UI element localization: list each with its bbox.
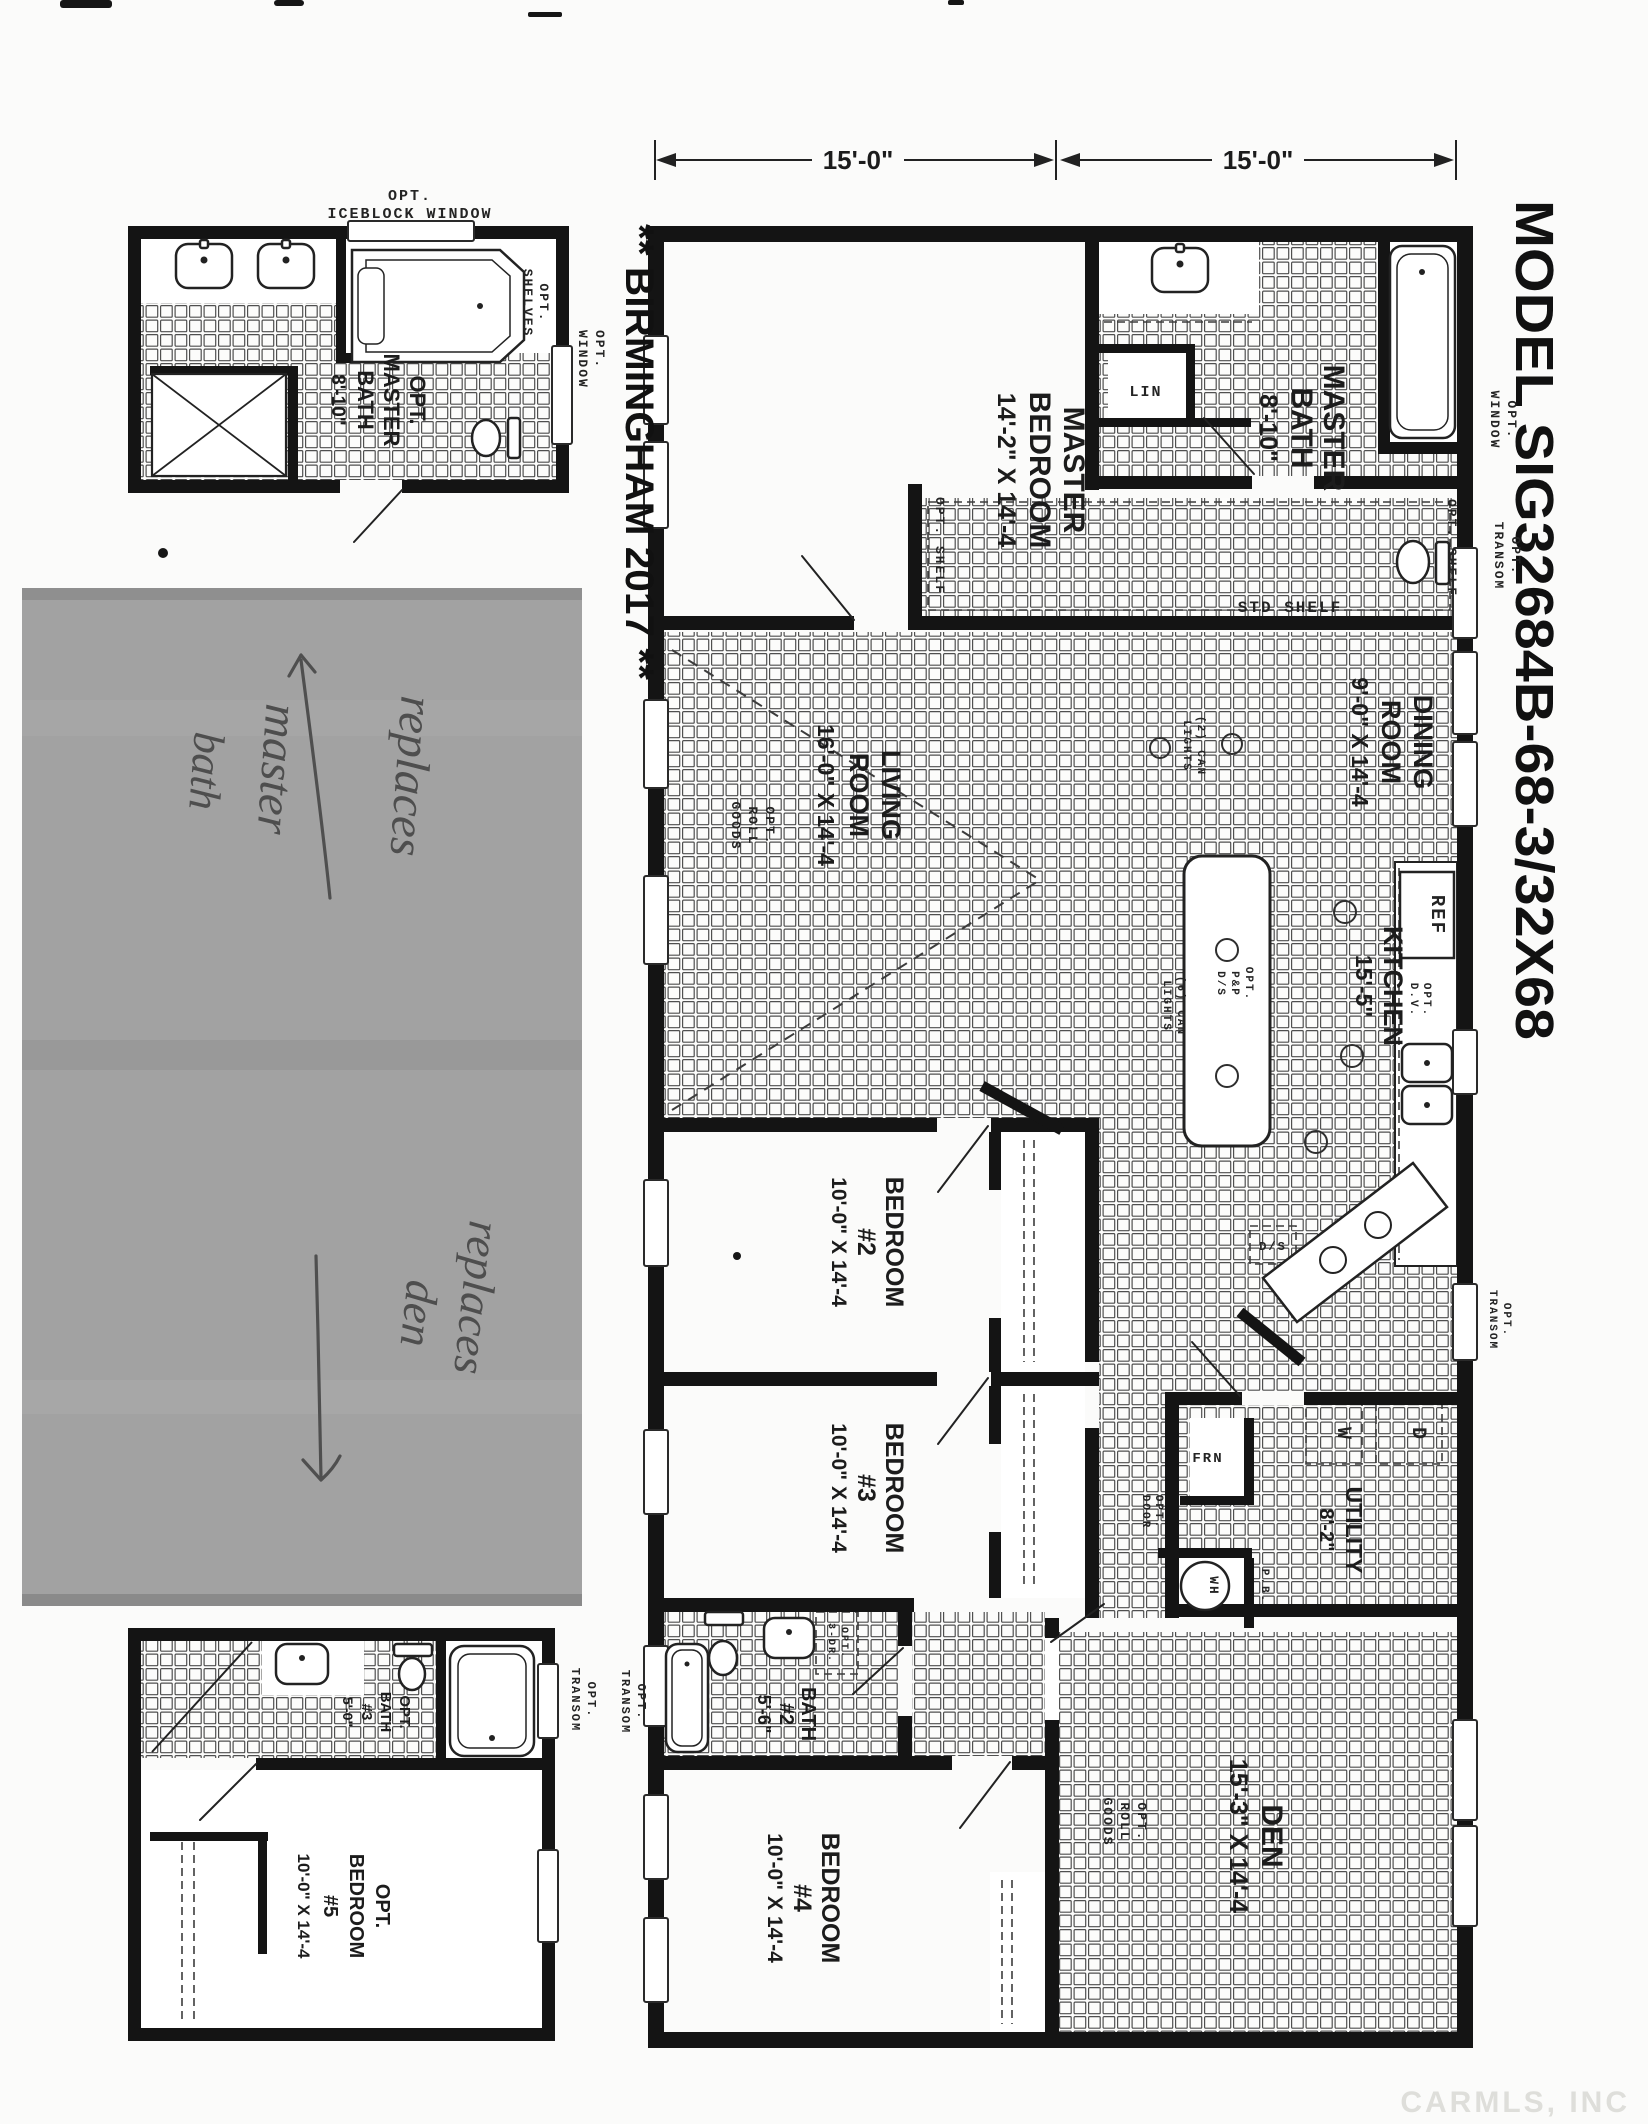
label-opt-shelves: OPT. <box>536 283 551 322</box>
label-bedroom2-size: 10'-0" X 14'-4 <box>827 1177 850 1307</box>
label-can-lights-2: LIGHTS <box>1180 720 1192 772</box>
label-opt-3dr: 3-DR. <box>825 1623 836 1663</box>
label-opt-bath3: OPT. <box>396 1695 413 1728</box>
label-opt-master-bath: MASTER <box>379 354 404 447</box>
tub-fixture <box>450 1646 534 1756</box>
sink-fixture <box>764 1618 814 1658</box>
label-frn: FRN <box>1192 1451 1223 1467</box>
label-ds: D/S <box>1259 1240 1287 1254</box>
label-opt-bedroom5-size: 10'-0" X 14'-4 <box>294 1854 313 1960</box>
dim-right: 15'-0" <box>1223 145 1294 175</box>
label-dining: DINING <box>1408 695 1438 790</box>
handwriting-replaces-master-bath: bath <box>179 730 233 811</box>
label-opt-pp-ds: P&P <box>1228 971 1240 997</box>
label-opt-shelf: OPT. SHELF <box>932 497 947 595</box>
series-title: ** BIRMINGHAM 2017 ** <box>617 224 661 680</box>
label-opt-iceblock: OPT. <box>388 188 432 205</box>
label-den: DEN <box>1255 1804 1288 1867</box>
model-title: MODEL SIG32684B-68-3/32X68 <box>1504 200 1564 1040</box>
label-living: ROOM <box>844 753 874 837</box>
label-bedroom2: BEDROOM <box>880 1177 908 1308</box>
label-bedroom3: BEDROOM <box>880 1423 908 1554</box>
label-master-bath: MASTER <box>1317 365 1350 492</box>
label-bedroom3: #3 <box>852 1474 880 1502</box>
label-opt-transom: TRANSOM <box>1486 1290 1498 1350</box>
sink-fixture <box>1152 244 1208 292</box>
label-opt-transom: OPT. <box>584 1682 598 1719</box>
watermark: CARMLS, INC <box>1400 2086 1630 2119</box>
label-opt-dv: D.V. <box>1407 983 1419 1017</box>
label-bath2: BATH <box>797 1687 819 1741</box>
label-opt-door: OPT. <box>1152 1495 1164 1529</box>
label-opt-bath3: #3 <box>358 1704 375 1721</box>
label-pb: P.B. <box>1258 1569 1270 1603</box>
label-master-bedroom: BEDROOM <box>1023 392 1056 549</box>
label-opt-transom: OPT. <box>634 1684 648 1721</box>
label-can-lights-6: LIGHTS <box>1160 980 1172 1032</box>
handwriting-replaces-master-bath: master <box>246 702 308 836</box>
label-opt-pp-ds: OPT. <box>1242 967 1254 1001</box>
tub-fixture <box>666 1644 708 1752</box>
label-utility-size: 8'-2" <box>1315 1508 1337 1551</box>
handwriting-replaces-master-bath: replaces <box>379 694 443 858</box>
label-opt-master-bath-size: 8'-10" <box>327 374 348 426</box>
label-bedroom4: #4 <box>788 1884 816 1912</box>
label-opt-window: WINDOW <box>1487 391 1502 450</box>
label-opt-door: DOOR <box>1139 1495 1151 1529</box>
handwriting-replaces-den: den <box>391 1278 449 1349</box>
label-opt-transom: OPT. <box>1500 1303 1512 1337</box>
label-iceblock-window: ICEBLOCK WINDOW <box>327 206 492 223</box>
label-kitchen: KITCHEN <box>1378 926 1408 1046</box>
label-opt-bath3-size: 5'-0" <box>340 1697 356 1727</box>
garden-tub-fixture <box>352 250 524 362</box>
sink-fixture <box>258 240 314 288</box>
label-master-bath: BATH <box>1285 387 1318 468</box>
sink-fixture <box>176 240 232 288</box>
label-utility: UTILITY <box>1341 1487 1367 1574</box>
label-ref: REF <box>1426 895 1448 935</box>
label-opt-bedroom5: BEDROOM <box>345 1854 367 1958</box>
floorplan-drawing: 15'-0" 15'-0" MODEL SIG32684B-68-3/32X68… <box>0 0 1648 2124</box>
dimension-lines <box>655 140 1456 180</box>
label-opt-roll-goods: OPT. <box>762 806 777 845</box>
scanned-floorplan-page: 15'-0" 15'-0" MODEL SIG32684B-68-3/32X68… <box>0 0 1648 2124</box>
label-opt-transom: OPT. <box>1508 536 1523 575</box>
label-opt-master-bath: BATH <box>353 370 378 429</box>
label-opt-roll-goods: OPT. <box>1134 1802 1149 1841</box>
label-washer: W <box>1331 1427 1354 1441</box>
label-can-lights-2: (2) CAN <box>1194 716 1206 776</box>
label-opt-transom: TRANSOM <box>1491 522 1506 591</box>
label-opt-shelf: OPT. SHELF <box>1444 499 1459 597</box>
label-dining: ROOM <box>1376 700 1406 784</box>
label-opt-roll-goods: ROLL <box>1117 1802 1132 1841</box>
label-bath2: #2 <box>775 1703 797 1725</box>
label-bedroom4-size: 10'-0" X 14'-4 <box>763 1833 786 1963</box>
label-master-bath-size: 8'-10" <box>1254 394 1282 462</box>
label-dining-size: 9'-0" X 14'-4 <box>1347 677 1373 806</box>
toilet-fixture <box>1397 541 1449 584</box>
label-opt-master-bath: OPT. <box>405 376 430 425</box>
label-opt-roll-goods: ROLL <box>745 806 760 845</box>
label-bath2-size: 5'-6" <box>754 1695 774 1734</box>
label-den-size: 15'-3" X 14'-4 <box>1224 1759 1252 1913</box>
toilet-fixture <box>472 418 520 458</box>
label-opt-roll-goods: GOODS <box>1100 1797 1115 1846</box>
kitchen-island <box>1184 856 1270 1146</box>
label-opt-bath3: BATH <box>377 1692 394 1733</box>
label-opt-pp-ds: D/S <box>1214 971 1226 997</box>
label-living-size: 16'-0" X 14'-4 <box>813 724 839 866</box>
label-opt-roll-goods: GOODS <box>728 801 743 850</box>
label-opt-window: OPT. <box>592 330 607 369</box>
label-opt-window: OPT. <box>1504 400 1519 439</box>
label-opt-window: WINDOW <box>575 330 590 389</box>
label-opt-bedroom5: OPT. <box>371 1884 393 1928</box>
label-opt-3dr: OPT. <box>838 1627 849 1659</box>
label-bedroom4: BEDROOM <box>816 1833 844 1964</box>
shower-fixture <box>152 374 286 476</box>
label-kitchen-size: 15'-5" <box>1351 955 1377 1017</box>
label-lin-closet: LIN <box>1129 384 1162 401</box>
garden-tub-fixture <box>1390 246 1455 438</box>
label-water-heater: WH <box>1206 1576 1221 1596</box>
label-living: LIVING <box>876 750 906 840</box>
label-opt-transom: TRANSOM <box>618 1670 632 1734</box>
label-opt-dv: OPT. <box>1420 983 1432 1017</box>
label-opt-shelves: SHELVES <box>520 269 535 338</box>
label-can-lights-6: (6) CAN <box>1174 976 1186 1036</box>
label-std-shelf: STD SHELF <box>1238 599 1342 617</box>
dim-left: 15'-0" <box>823 145 894 175</box>
label-bedroom3-size: 10'-0" X 14'-4 <box>827 1423 850 1553</box>
label-master-bedroom-size: 14'-2" X 14'-4 <box>992 393 1020 547</box>
sink-fixture <box>276 1644 328 1684</box>
label-bedroom2: #2 <box>852 1228 880 1256</box>
label-master-bedroom: MASTER <box>1057 407 1090 534</box>
label-opt-bedroom5: #5 <box>319 1895 341 1917</box>
label-dryer: D <box>1406 1427 1429 1441</box>
label-opt-transom: TRANSOM <box>568 1668 582 1732</box>
